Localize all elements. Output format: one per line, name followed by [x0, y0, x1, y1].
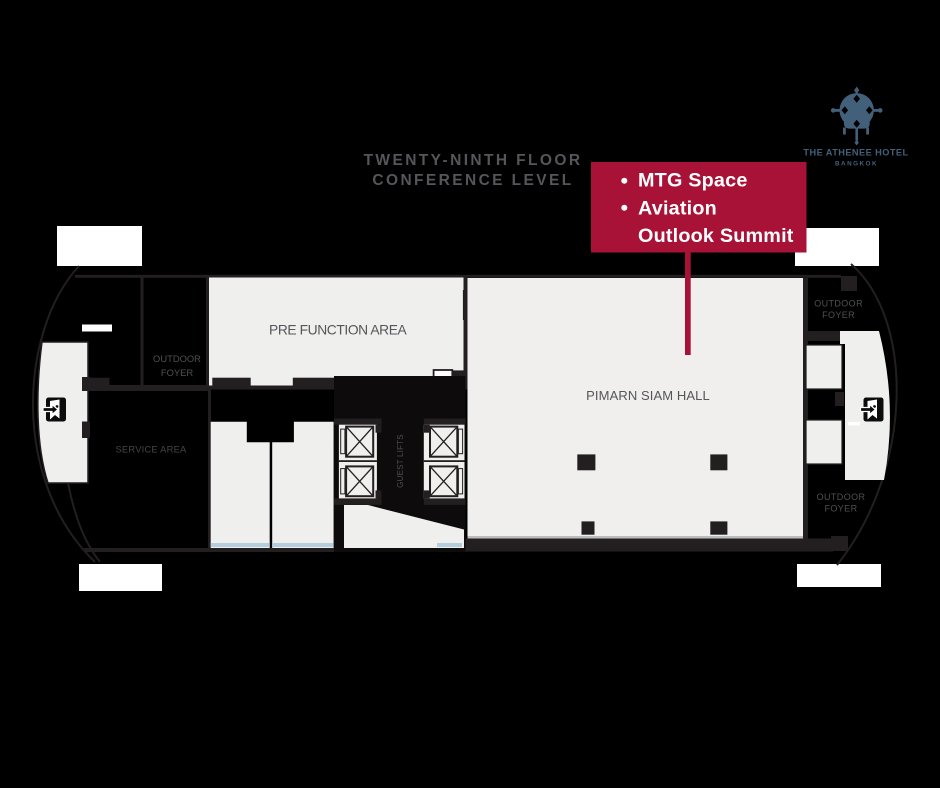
svg-text:FOYER: FOYER: [824, 504, 857, 514]
svg-text:OUTDOOR: OUTDOOR: [153, 353, 201, 364]
svg-text:MTG Space: MTG Space: [638, 170, 748, 192]
svg-text:OUTDOOR: OUTDOOR: [814, 299, 863, 309]
svg-text:SERVICE AREA: SERVICE AREA: [115, 444, 187, 455]
svg-text:Outlook Summit: Outlook Summit: [638, 225, 794, 247]
svg-text:PIMARN SIAM HALL: PIMARN SIAM HALL: [586, 388, 710, 403]
svg-text:GUEST LIFTS: GUEST LIFTS: [396, 434, 405, 488]
svg-text:CONFERENCE LEVEL: CONFERENCE LEVEL: [372, 172, 573, 189]
svg-text:THE ATHENEE HOTEL: THE ATHENEE HOTEL: [803, 148, 908, 158]
svg-text:BANGKOK: BANGKOK: [835, 161, 878, 168]
svg-text:TWENTY-NINTH FLOOR: TWENTY-NINTH FLOOR: [364, 152, 583, 169]
svg-text:Aviation: Aviation: [638, 198, 717, 220]
svg-text:PRE FUNCTION AREA: PRE FUNCTION AREA: [269, 323, 408, 338]
svg-text:OUTDOOR: OUTDOOR: [817, 492, 866, 502]
svg-text:FOYER: FOYER: [822, 310, 855, 320]
svg-text:FOYER: FOYER: [161, 367, 194, 378]
